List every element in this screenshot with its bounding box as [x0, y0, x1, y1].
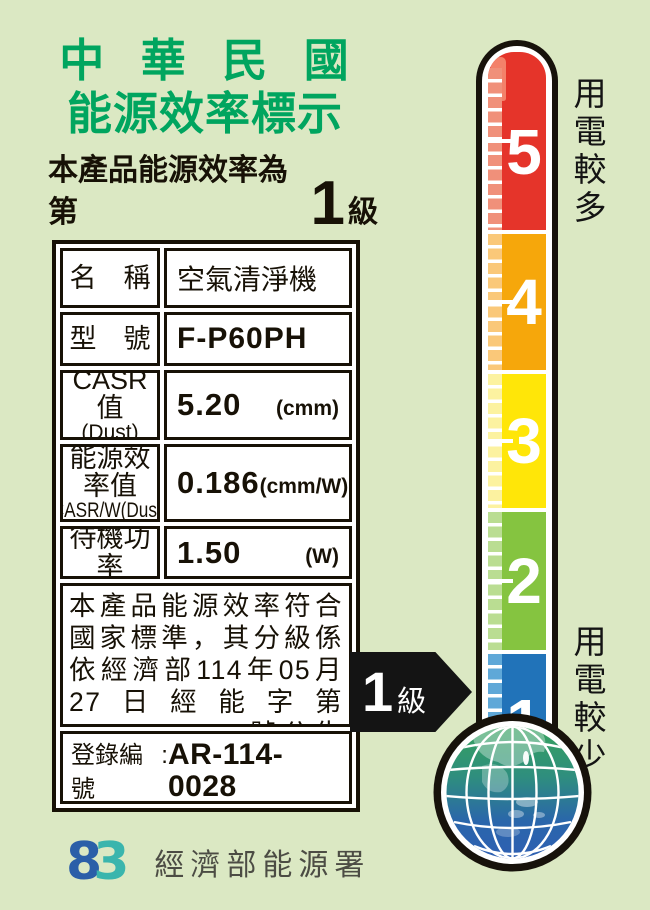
thermometer-fill: 5 4 3 2 1 [488, 52, 546, 774]
row-name-label: 名 稱 [60, 248, 160, 308]
row-efficiency-value: 0.186 (cmm/W) [164, 444, 352, 522]
registration-label: 登錄編號 [71, 739, 161, 804]
registration-row: 登錄編號 : AR-114-0028 [60, 731, 352, 804]
row-standby-label: 待機功率 [60, 526, 160, 579]
energy-label: 中 華 民 國 能源效率標示 本產品能源效率為第 1 級 名 稱 空氣清淨機 型… [0, 0, 650, 910]
globe-icon [430, 710, 595, 880]
grade-statement: 本產品能源效率為第 1 級 [48, 150, 378, 234]
caption-more-power: 用電較多 [563, 76, 611, 228]
level-number-5: 5 [502, 120, 546, 184]
grade-statement-suffix: 級 [348, 192, 378, 234]
level-number-3: 3 [502, 409, 546, 473]
grade-statement-prefix: 本產品能源效率為第 [48, 150, 308, 234]
agency-name: 經濟部能源署 [146, 840, 370, 884]
thermometer-tube: 5 4 3 2 1 [476, 40, 558, 780]
row-casr-label: CASR值 (Dust) [60, 370, 160, 440]
level-number-4: 4 [502, 270, 546, 334]
grade-arrow-number: 1 [362, 664, 393, 720]
row-name-value: 空氣清淨機 [164, 248, 352, 308]
title-line1: 中 華 民 國 [40, 34, 370, 87]
row-model-value: F-P60PH [164, 312, 352, 366]
row-model-label: 型 號 [60, 312, 160, 366]
spec-table: 名 稱 空氣清淨機 型 號 F-P60PH CASR值 (Dust) 5.20 … [52, 240, 360, 812]
grade-number-large: 1 [311, 175, 345, 234]
thermo-level-3: 3 [488, 370, 546, 508]
thermo-level-2: 2 [488, 508, 546, 650]
title-line2: 能源效率標示 [40, 87, 370, 140]
thermo-level-5: 5 [488, 52, 546, 230]
row-efficiency-label: 能源效率值 CASR/W(Dust) [60, 444, 160, 522]
label-title: 中 華 民 國 能源效率標示 [40, 34, 370, 140]
level-number-2: 2 [502, 549, 546, 613]
grade-arrow-suffix: 級 [397, 678, 426, 720]
compliance-statement: 本產品能源效率符合國家標準，其分級係依經濟部114年05月27日經能字第1145… [60, 583, 352, 727]
footer: 83 經濟部能源署 [66, 836, 370, 888]
row-casr-value: 5.20 (cmm) [164, 370, 352, 440]
registration-number: AR-114-0028 [168, 739, 341, 803]
row-standby-value: 1.50 (W) [164, 526, 352, 579]
tick-strip-5 [488, 68, 502, 230]
thermo-level-4: 4 [488, 230, 546, 370]
energy-administration-logo-icon: 83 [66, 836, 120, 888]
